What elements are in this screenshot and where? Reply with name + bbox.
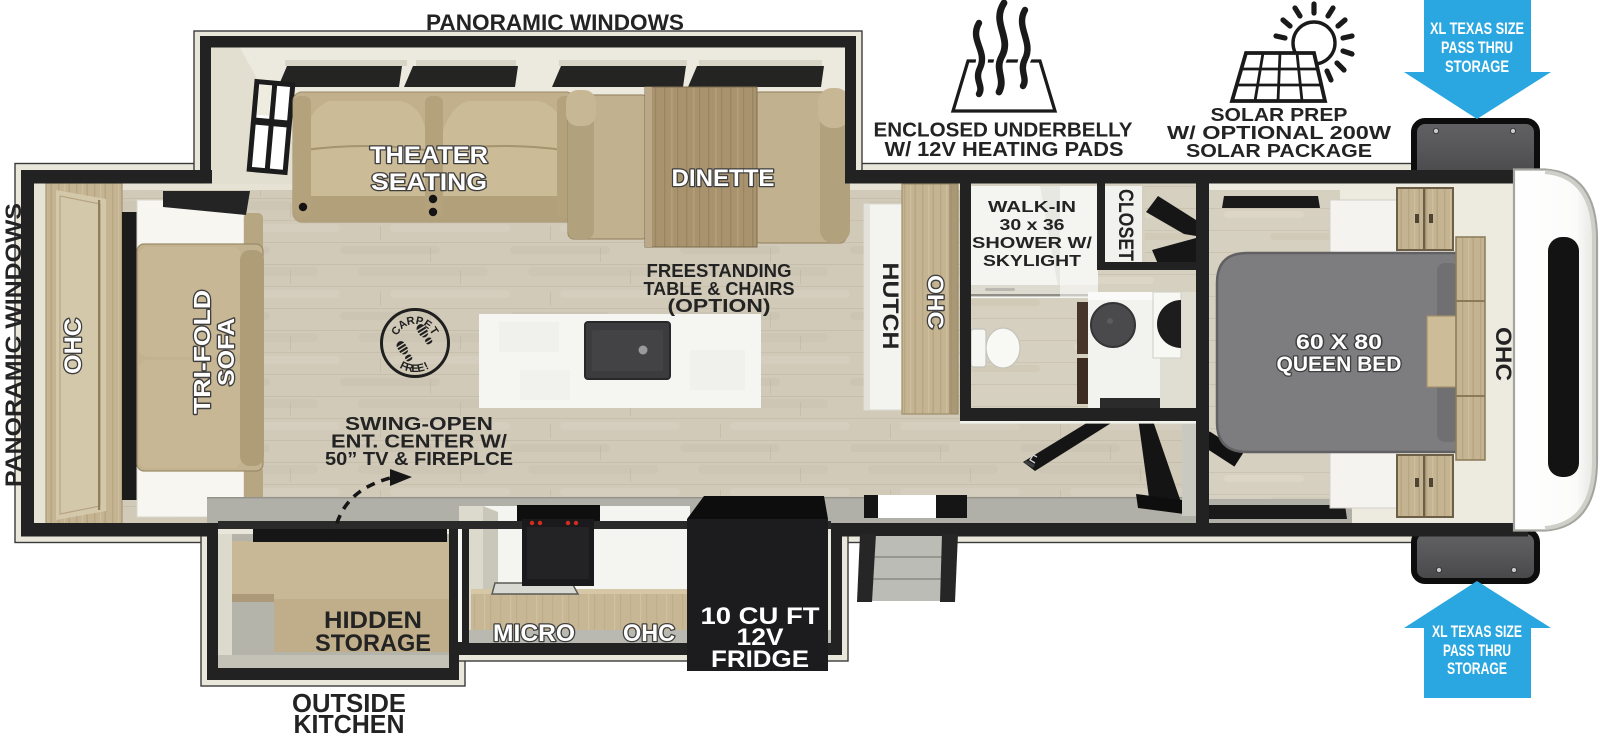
svg-text:PANORAMIC WINDOWS: PANORAMIC WINDOWS — [1, 203, 26, 487]
svg-text:SHOWER W/: SHOWER W/ — [972, 235, 1093, 252]
svg-text:CLOSET: CLOSET — [1114, 189, 1137, 261]
svg-text:WALK-IN: WALK-IN — [988, 199, 1076, 216]
svg-text:OHC: OHC — [1491, 327, 1516, 381]
svg-text:30 x 36: 30 x 36 — [1000, 217, 1065, 234]
svg-text:PANORAMIC WINDOWS: PANORAMIC WINDOWS — [426, 10, 684, 35]
svg-text:SEATING: SEATING — [371, 169, 487, 196]
svg-text:PASS THRU: PASS THRU — [1443, 641, 1511, 660]
svg-text:OHC: OHC — [623, 620, 675, 647]
svg-text:XL TEXAS SIZE: XL TEXAS SIZE — [1432, 622, 1522, 641]
svg-text:PASS THRU: PASS THRU — [1441, 38, 1513, 57]
svg-text:(OPTION): (OPTION) — [668, 295, 771, 316]
svg-text:W/ 12V HEATING PADS: W/ 12V HEATING PADS — [885, 139, 1124, 161]
svg-text:OHC: OHC — [60, 318, 87, 374]
svg-text:SOLAR PACKAGE: SOLAR PACKAGE — [1186, 140, 1372, 161]
svg-text:60 X 80: 60 X 80 — [1296, 331, 1382, 354]
svg-text:STORAGE: STORAGE — [1445, 57, 1509, 76]
svg-text:FRIDGE: FRIDGE — [711, 646, 809, 673]
svg-text:XL TEXAS SIZE: XL TEXAS SIZE — [1430, 19, 1524, 38]
svg-text:SOFA: SOFA — [213, 318, 239, 386]
svg-text:MICRO: MICRO — [493, 620, 575, 647]
svg-text:STORAGE: STORAGE — [1447, 659, 1507, 678]
svg-text:TRI-FOLD: TRI-FOLD — [189, 290, 215, 414]
svg-text:KITCHEN: KITCHEN — [294, 709, 405, 735]
svg-text:OHC: OHC — [923, 275, 948, 329]
svg-text:50” TV & FIREPLCE: 50” TV & FIREPLCE — [325, 449, 513, 469]
svg-text:SKYLIGHT: SKYLIGHT — [983, 253, 1082, 270]
svg-text:QUEEN BED: QUEEN BED — [1277, 353, 1402, 376]
svg-text:STORAGE: STORAGE — [315, 630, 431, 657]
svg-text:THEATER: THEATER — [370, 142, 488, 169]
svg-text:DINETTE: DINETTE — [672, 165, 775, 192]
svg-text:HUTCH: HUTCH — [878, 263, 903, 350]
